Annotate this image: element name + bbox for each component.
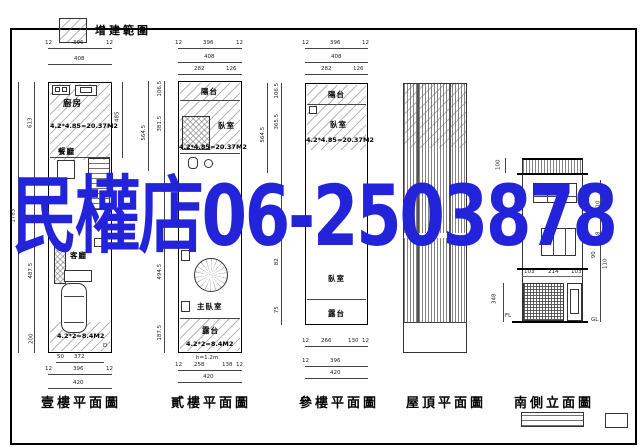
plan1-dining-label: 餐廳: [58, 148, 75, 156]
dim-label: 12: [302, 359, 309, 365]
dim-label: 396: [330, 41, 341, 47]
dim-label: 138: [222, 363, 233, 369]
dim-label: 381.5: [158, 116, 164, 132]
plan2-wall-line: [180, 153, 240, 154]
level-label-fl: FL: [505, 314, 511, 320]
dim-line: [148, 81, 149, 171]
plan2-bedroom-area: 4.2*4.85=20.37M2: [179, 144, 247, 151]
dim-label: 106.5: [158, 81, 164, 97]
plan2-bedroom-label: 臥室: [218, 122, 235, 130]
dim-label: 12: [236, 363, 243, 369]
dim-label: 12: [106, 41, 113, 47]
dim-line: [305, 62, 368, 63]
plan3-bedroom-area: 4.2*4.85=20.37M2: [306, 137, 374, 144]
dim-label: 408: [74, 57, 85, 63]
car-icon: [61, 283, 87, 333]
elev-title: 南側立面圖: [514, 397, 594, 410]
drawing-sheet: 增建範圍 廚房 4.2*4.85=20.37M2 餐廳 客廳 4.2*2=8.4…: [0, 0, 640, 447]
plan3-bedroom-up-label: 臥室: [330, 121, 347, 129]
dim-line: [305, 74, 368, 75]
dim-label: 12: [45, 41, 52, 47]
dim-line: [56, 362, 104, 363]
plan3-title: 參樓平面圖: [299, 397, 379, 410]
dim-label: 12: [362, 41, 369, 47]
dim-label: 365.5: [275, 114, 281, 130]
dim-label: 187.5: [158, 325, 164, 341]
dim-label: 12: [302, 339, 309, 345]
dim-label: 564.5: [142, 125, 148, 141]
dim-label: 12: [302, 41, 309, 47]
dim-line: [305, 48, 368, 49]
dim-line: [48, 64, 112, 65]
ground-line: [512, 321, 588, 323]
garage-door-icon: [523, 283, 564, 321]
dim-line: [178, 370, 242, 371]
dim-label: 12: [236, 41, 243, 47]
dim-label: 12: [106, 367, 113, 373]
dim-label: 420: [203, 375, 214, 381]
legend-label: 增建範圍: [95, 25, 151, 36]
kitchen-sink-basin: [80, 87, 92, 93]
plan2-master-label: 主臥室: [197, 303, 223, 311]
dim-line: [178, 74, 242, 75]
plan2-terrace-label: 露台: [202, 327, 219, 335]
dim-line: [122, 82, 123, 158]
dim-label: 485: [116, 112, 122, 123]
dim-label: 266: [321, 339, 332, 345]
dim-line: [178, 48, 242, 49]
dim-label: 564.5: [261, 127, 267, 143]
plan1-garage-area: 4.2*2=8.4M2: [57, 333, 104, 340]
dim-label: 420: [73, 381, 84, 387]
dim-label: 126: [353, 67, 364, 73]
plan4-diagonal-hatch: [404, 84, 466, 148]
sofa-icon: [64, 270, 92, 282]
phone-watermark: 民權店06-2503878: [12, 174, 616, 258]
plan1-door-label: D: [103, 344, 107, 350]
dim-label: 613: [29, 118, 35, 129]
dim-label: 372: [74, 355, 85, 361]
dim-label: 106.5: [275, 83, 281, 99]
dim-label: 396: [73, 367, 84, 373]
car-windshield-line: [64, 296, 84, 297]
dim-label: 12: [175, 363, 182, 369]
dim-line: [48, 388, 112, 389]
dim-label: 126: [226, 67, 237, 73]
plan1-kitchen-area: 4.2*4.85=20.37M2: [50, 123, 118, 130]
dim-line: [305, 366, 368, 367]
dim-label: 12: [175, 41, 182, 47]
dim-label: 282: [321, 67, 332, 73]
plan2-balcony-label: 陽台: [201, 88, 218, 96]
fixture-icon: [181, 301, 190, 312]
dim-label: 408: [204, 55, 215, 61]
dim-label: 12: [45, 367, 52, 373]
dim-line: [522, 276, 583, 277]
dim-label: 487.5: [29, 263, 35, 279]
dim-line: [503, 283, 504, 322]
dim-label: 130: [348, 339, 359, 345]
plan2-title: 貳樓平面圖: [171, 397, 251, 410]
plan1-title: 壹樓平面圖: [41, 397, 121, 410]
stove-burner-icon: [55, 87, 60, 92]
material-strip: [521, 412, 584, 427]
plan1-kitchen-label: 廚房: [63, 100, 82, 109]
plan3-balcony-label: 陽台: [328, 91, 345, 99]
plan3-bedroom-low-label: 臥室: [328, 275, 345, 283]
plan4-bottom-line: [403, 322, 467, 323]
dim-line: [178, 382, 242, 383]
entry-door-panel: [570, 289, 579, 314]
dim-label: 420: [330, 371, 341, 377]
plan2-terrace-area: 4.2*2=8.4M2: [186, 341, 233, 348]
dim-label: 494.5: [158, 264, 164, 280]
dim-label: 408: [331, 55, 342, 61]
dim-line: [305, 378, 368, 379]
car-rear-line: [64, 322, 84, 323]
dim-label: 200: [30, 334, 36, 345]
plan2-note: h=1.2m: [196, 356, 218, 362]
dim-line: [267, 83, 268, 173]
level-label-gl: GL: [591, 318, 598, 324]
dim-line: [178, 62, 242, 63]
dim-label: 282: [194, 67, 205, 73]
dim-label: 214: [548, 270, 559, 276]
stove-burner-icon: [62, 87, 67, 92]
dim-label: 396: [330, 359, 341, 365]
dim-label: 103: [524, 270, 535, 276]
plan3-wall-line: [307, 299, 366, 300]
dim-line: [305, 346, 368, 347]
dim-line: [48, 48, 112, 49]
dim-label: 348: [493, 294, 499, 305]
fixture-icon: [309, 106, 317, 114]
dim-label: 75: [275, 306, 281, 313]
dim-label: 396: [203, 41, 214, 47]
dim-line: [48, 374, 112, 375]
plan4-title: 屋頂平面圖: [406, 397, 486, 410]
dim-label: 396: [73, 41, 84, 47]
plan3-terrace-label: 露台: [328, 310, 345, 318]
dim-label: 258: [194, 363, 205, 369]
material-box: [605, 413, 628, 428]
dim-label: 103: [571, 270, 582, 276]
dim-label: 12: [362, 339, 369, 345]
dim-label: 50: [57, 355, 64, 361]
